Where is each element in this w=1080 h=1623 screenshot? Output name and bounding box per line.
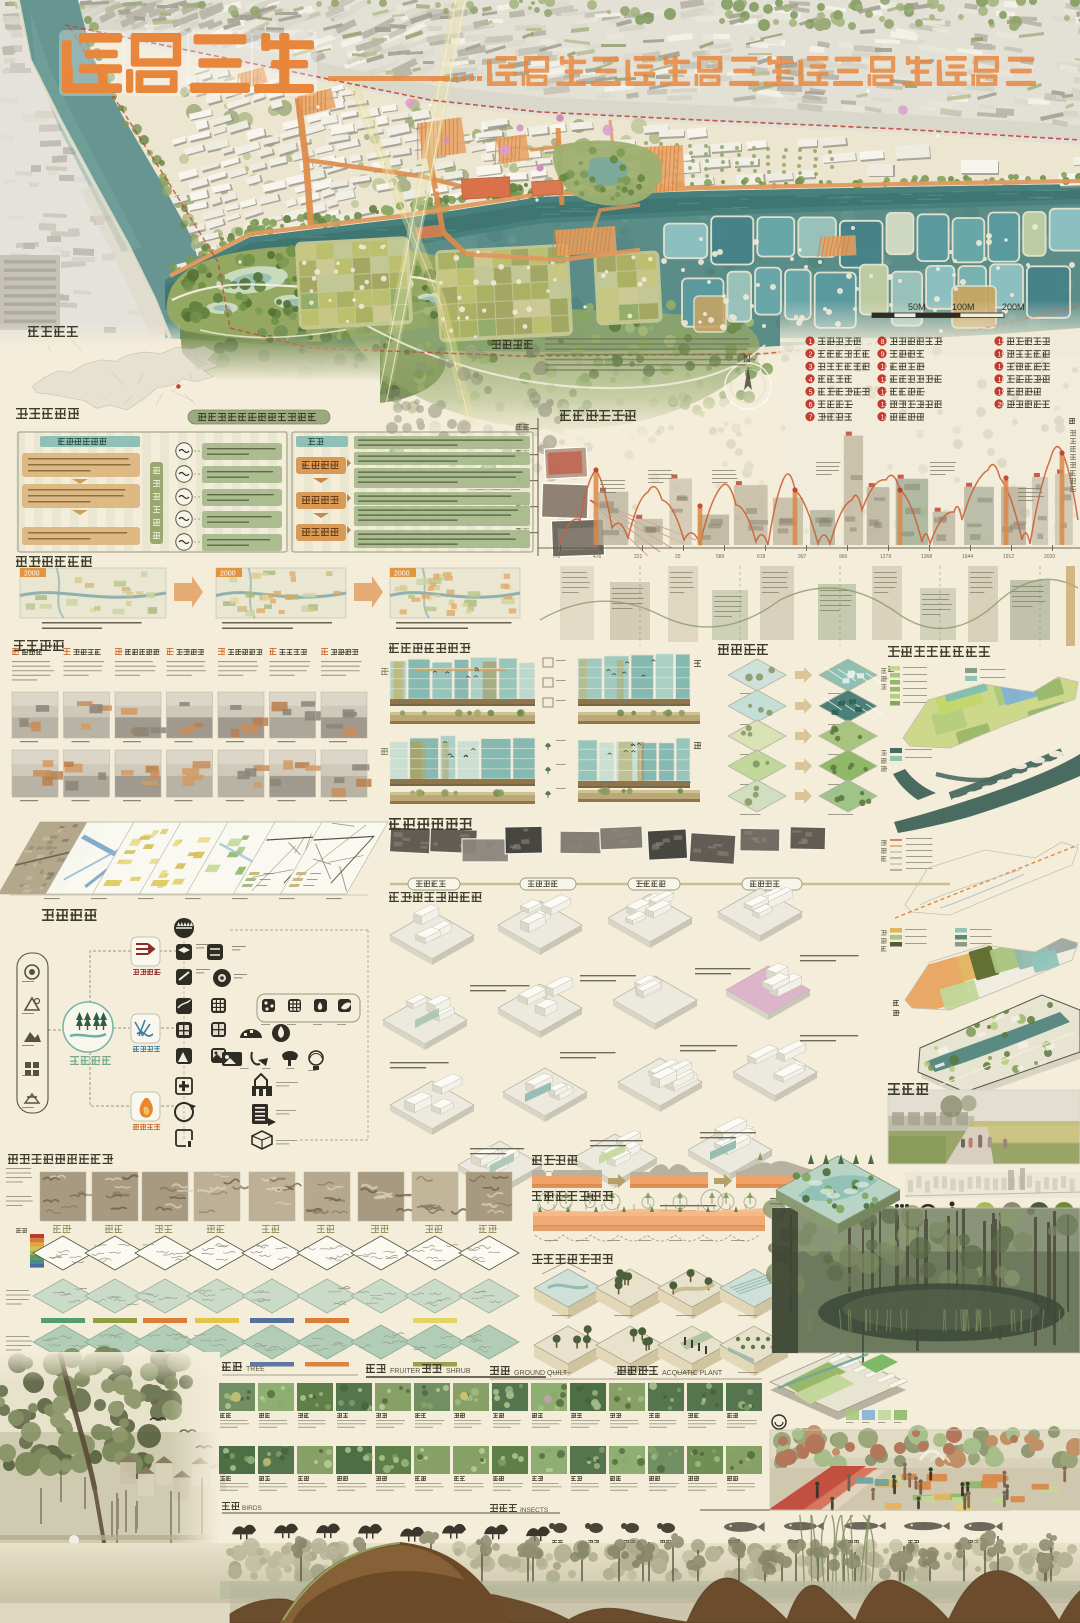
svg-text:20: 20 <box>998 402 1006 409</box>
svg-text:770: 770 <box>552 554 561 560</box>
svg-text:1279: 1279 <box>880 554 891 560</box>
svg-text:100M: 100M <box>952 302 975 312</box>
svg-text:3: 3 <box>809 364 813 371</box>
svg-text:6: 6 <box>809 402 813 409</box>
svg-text:9: 9 <box>881 352 885 359</box>
svg-text:FRUITER: FRUITER <box>390 1368 420 1375</box>
svg-text:SHRUB: SHRUB <box>446 1368 471 1375</box>
svg-text:BIRDS: BIRDS <box>242 1505 263 1512</box>
svg-text:16: 16 <box>998 352 1006 359</box>
svg-text:8: 8 <box>881 339 885 346</box>
svg-text:50M: 50M <box>908 302 926 312</box>
svg-text:14: 14 <box>881 415 889 422</box>
svg-text:1: 1 <box>809 339 813 346</box>
svg-text:10: 10 <box>881 364 889 371</box>
svg-text:589: 589 <box>716 554 725 560</box>
svg-text:1368: 1368 <box>921 554 932 560</box>
svg-text:ACQUATIC PLANT: ACQUATIC PLANT <box>662 1370 723 1377</box>
svg-text:2000: 2000 <box>24 571 40 578</box>
svg-text:1644: 1644 <box>962 554 973 560</box>
svg-text:INSECTS: INSECTS <box>520 1507 549 1514</box>
svg-text:221: 221 <box>634 554 643 560</box>
svg-text:200M: 200M <box>1002 302 1025 312</box>
svg-text:2000: 2000 <box>394 571 410 578</box>
svg-text:476: 476 <box>593 554 602 560</box>
svg-text:13: 13 <box>881 402 889 409</box>
svg-text:17: 17 <box>998 364 1006 371</box>
svg-text:7: 7 <box>809 415 813 422</box>
svg-text:4: 4 <box>809 377 813 384</box>
svg-text:2: 2 <box>809 352 813 359</box>
svg-text:11: 11 <box>881 377 888 384</box>
svg-text:1912: 1912 <box>1003 554 1014 560</box>
svg-text:960: 960 <box>839 554 848 560</box>
svg-text:618: 618 <box>757 554 766 560</box>
svg-text:25: 25 <box>675 554 681 560</box>
svg-text:19: 19 <box>998 389 1006 396</box>
svg-text:907: 907 <box>798 554 807 560</box>
svg-text:15: 15 <box>998 339 1006 346</box>
svg-text:TREE: TREE <box>246 1366 265 1373</box>
svg-text:5: 5 <box>809 389 813 396</box>
svg-text:12: 12 <box>881 389 889 396</box>
svg-text:18: 18 <box>998 377 1006 384</box>
svg-text:2020: 2020 <box>1044 554 1055 560</box>
svg-text:2000: 2000 <box>220 571 236 578</box>
svg-text:GROUND QUILT: GROUND QUILT <box>514 1370 568 1377</box>
